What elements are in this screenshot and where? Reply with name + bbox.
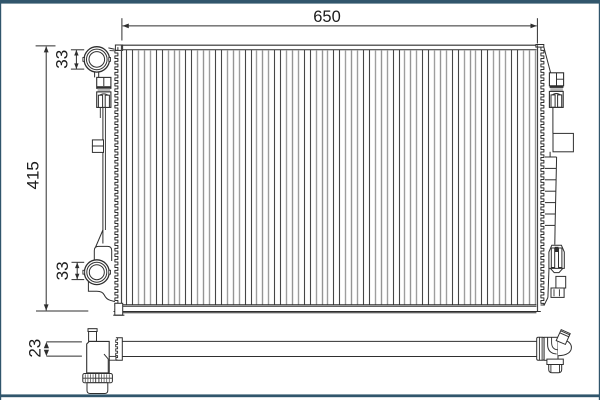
svg-text:415: 415 (23, 161, 42, 189)
svg-text:33: 33 (53, 261, 72, 280)
svg-text:650: 650 (313, 8, 341, 26)
svg-text:23: 23 (26, 339, 45, 358)
svg-text:33: 33 (52, 50, 71, 69)
